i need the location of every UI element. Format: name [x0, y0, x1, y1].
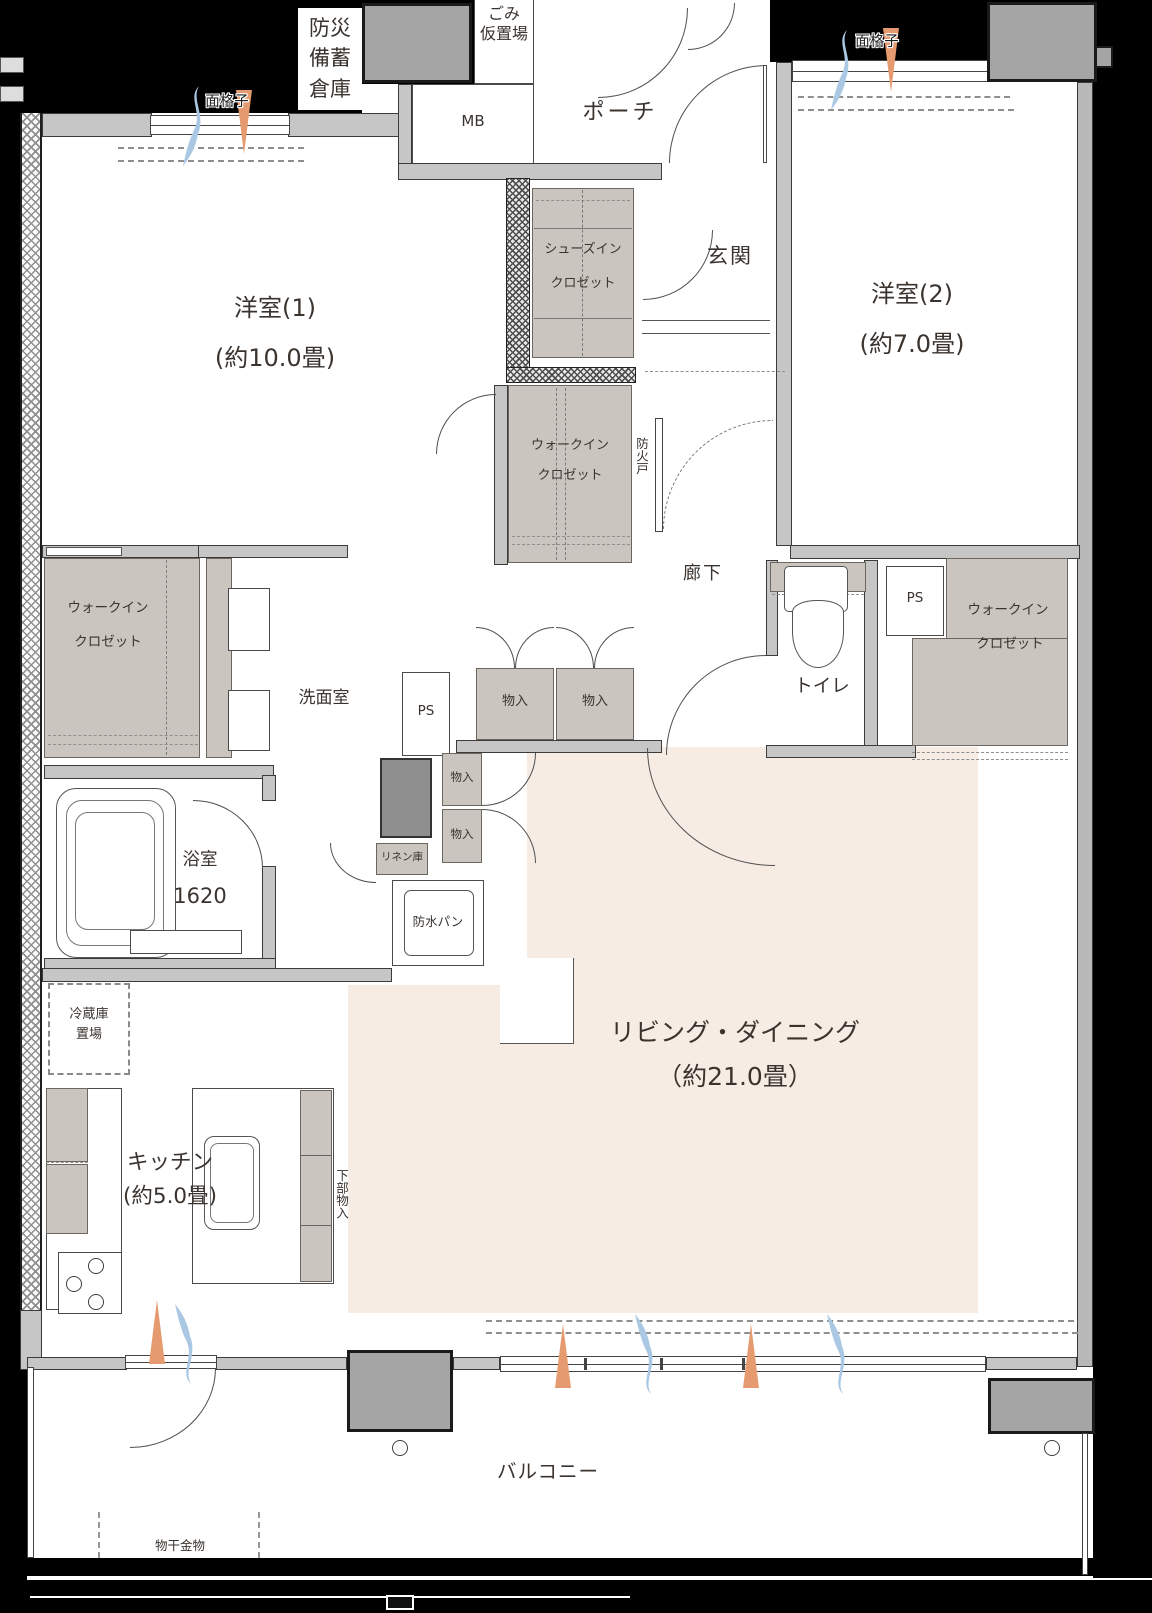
wic-right-dash-1 — [912, 752, 1068, 753]
disaster-storage-box: 防災 備蓄 倉庫 — [298, 8, 362, 110]
storage-b-door-arc-2 — [594, 627, 634, 668]
bath-size-label: 1620 — [152, 884, 248, 909]
wall-sic-bottom — [506, 367, 636, 383]
wall-balcony-2 — [215, 1357, 347, 1370]
wall-hall-bottom — [456, 740, 662, 753]
wall-entry-left — [506, 178, 530, 368]
balcony-outer-line — [30, 1596, 630, 1598]
balcony-left-edge — [27, 1367, 34, 1558]
hallway-label: 廊下 — [668, 563, 738, 585]
bath-label: 浴室 — [158, 850, 242, 871]
washer-counter — [380, 758, 432, 838]
western2-label: 洋室(2) — [812, 280, 1012, 309]
toilet-bowl — [792, 600, 844, 668]
island-split-1 — [300, 1155, 332, 1156]
shoes-in-closet — [532, 188, 634, 358]
fridge-label-2: 置場 — [50, 1027, 128, 1043]
storage-a-label: 物入 — [476, 694, 554, 710]
stove-burner-3 — [88, 1294, 104, 1310]
wic-left-sliding-door — [46, 547, 122, 556]
walkin-right-label-2: クロゼット — [956, 636, 1064, 652]
kitchen-counter-dash — [46, 1162, 88, 1163]
storage-a-door-arc-2 — [515, 627, 554, 668]
stove-burner-1 — [88, 1258, 104, 1274]
linen-door-arc — [330, 843, 376, 883]
wall-wic-center-left — [494, 385, 508, 565]
vanity-unit-a — [228, 588, 270, 651]
wic-left-dash-h2 — [48, 744, 198, 745]
wall-porch-bottom — [398, 163, 662, 180]
ld-curtain-dash-2 — [486, 1332, 1078, 1334]
party-wall-left — [20, 113, 42, 1310]
shoes-closet-label-2: クロゼット — [538, 276, 628, 292]
laundry-pole-line-1 — [98, 1512, 100, 1558]
fridge-label-1: 冷蔵庫 — [50, 1007, 128, 1023]
window-grille-label-left: 面格子 — [196, 94, 258, 111]
wall-balcony-4 — [986, 1357, 1077, 1370]
storage-d-label: 物入 — [444, 828, 480, 842]
toilet-door-arc — [666, 655, 766, 755]
walkin-center-label-2: クロゼット — [510, 468, 630, 484]
trash-room-label-1: ごみ — [475, 4, 533, 23]
wall-kitchen-top — [42, 968, 392, 982]
vanity-unit-b — [228, 690, 270, 751]
walkin-right-label-1: ウォークイン — [952, 602, 1064, 618]
entrance-step-line-b — [642, 333, 770, 334]
storage-b-door-arc-1 — [556, 627, 594, 668]
porch-door-arc — [598, 8, 688, 98]
wall-western2-bottom — [790, 545, 1080, 559]
wall-top-w1-left — [42, 113, 152, 137]
wall-toilet-bottom — [766, 745, 916, 758]
bathtub-inner — [75, 812, 155, 930]
wall-bath-right-a — [262, 775, 276, 801]
sic-shelf-line-b — [534, 318, 632, 319]
pipe-space-left-label: PS — [402, 703, 450, 719]
kitchen-counter-top — [46, 1088, 88, 1162]
living-dining-size: （約21.0畳） — [520, 1062, 950, 1092]
balcony-label: バルコニー — [478, 1460, 618, 1483]
fire-door-leaf — [655, 418, 663, 532]
waterproof-pan-label: 防水パン — [394, 914, 482, 929]
trash-room: ごみ 仮置場 — [474, 0, 534, 84]
laundry-pole-line-2 — [258, 1512, 260, 1558]
window-western1 — [150, 115, 290, 135]
stove-burner-2 — [66, 1276, 82, 1292]
storage-a-door-arc-1 — [476, 627, 515, 668]
outer-wall-right — [1077, 82, 1093, 1367]
wall-western1-bottom-right — [198, 545, 348, 558]
entry-door-leaf — [763, 65, 767, 163]
toilet-label: トイレ — [778, 676, 866, 698]
window-grille-label-right: 面格子 — [846, 34, 908, 51]
airflow-in-icon — [146, 1298, 168, 1364]
walkin-center-label-1: ウォークイン — [510, 438, 630, 454]
balcony-drain-box — [386, 1595, 414, 1610]
washroom-label: 洗面室 — [276, 688, 372, 708]
edge-mark-a — [0, 57, 24, 73]
floor-plan: 防災 備蓄 倉庫 ごみ 仮置場 MB ポーチ 面格子 面格子 洋室(1) (約1… — [0, 0, 1152, 1613]
window-mullion-1 — [584, 1358, 587, 1370]
edge-mark-b — [0, 86, 24, 102]
linen-label: リネン庫 — [376, 851, 428, 864]
ld-curtain-dash-1 — [486, 1320, 1074, 1322]
walkin-left-label-1: ウォークイン — [50, 600, 166, 616]
outside-bottom-left — [0, 1367, 27, 1613]
sic-shelf-line-a — [534, 228, 632, 229]
entrance-label: 玄関 — [690, 244, 770, 269]
disaster-storage-label-2: 備蓄 — [309, 46, 351, 71]
fridge-space: 冷蔵庫 置場 — [48, 983, 130, 1075]
laundry-hardware-label: 物干金物 — [138, 1538, 222, 1553]
kitchen-label: キッチン — [95, 1150, 245, 1176]
island-under-storage — [300, 1090, 332, 1282]
airflow-out-icon — [174, 1300, 200, 1384]
fire-door-arc — [663, 420, 773, 530]
wic-center-dash-h2 — [512, 544, 630, 545]
wic-left-dash-h1 — [48, 735, 198, 736]
walkin-closet-left — [44, 558, 200, 758]
airflow-out-icon — [826, 1310, 852, 1394]
curtain-line-w1-b — [118, 160, 304, 162]
entrance-step-line-a — [642, 320, 770, 321]
western1-label: 洋室(1) — [175, 294, 375, 323]
disaster-storage-label-3: 倉庫 — [309, 77, 351, 102]
walkin-closet-right-upper — [946, 558, 1068, 642]
walkin-left-label-2: クロゼット — [50, 634, 166, 650]
balcony-right-edge — [1082, 1433, 1088, 1575]
disaster-storage-label-1: 防災 — [309, 16, 351, 41]
storage-b-label: 物入 — [556, 694, 634, 710]
airflow-out-icon — [634, 1310, 660, 1394]
wall-balcony-3 — [453, 1357, 500, 1370]
living-dining-label: リビング・ダイニング — [520, 1018, 950, 1048]
kitchen-counter-mid — [46, 1164, 88, 1234]
structural-block-tab — [1095, 46, 1113, 68]
pillar-mid-marker — [392, 1440, 408, 1456]
bath-counter — [130, 930, 242, 954]
pipe-space-right-label: PS — [886, 590, 944, 606]
sic-shelf-dash — [536, 200, 630, 201]
western1-wic-door-arc — [436, 394, 496, 454]
under-counter-storage-label: 下部物入 — [334, 1146, 349, 1242]
structural-block-top-left — [362, 3, 472, 83]
western1-size: (約10.0畳) — [165, 344, 385, 373]
pillar-balcony-right — [988, 1378, 1095, 1434]
balcony-outer-band-1 — [0, 1558, 1152, 1576]
curtain-line-w1-a — [118, 147, 304, 149]
wic-right-dash-2 — [912, 759, 1068, 760]
wall-bath-top — [44, 765, 274, 779]
airflow-in-icon — [552, 1322, 574, 1388]
wall-toilet-right — [864, 560, 878, 750]
western2-size: (約7.0畳) — [812, 330, 1012, 359]
shoes-closet-label-1: シューズイン — [538, 242, 628, 258]
kitchen-size: (約5.0畳) — [85, 1184, 255, 1210]
wall-western2-left — [776, 62, 792, 546]
wall-top-w1-right — [288, 113, 412, 137]
meter-box-label: MB — [433, 112, 513, 130]
fire-door-label: 防火戸 — [634, 424, 649, 488]
island-split-2 — [300, 1225, 332, 1226]
kitchen-balcony-door — [125, 1355, 217, 1369]
window-mullion-2 — [660, 1358, 663, 1370]
sic-center-dash — [582, 190, 583, 356]
wic-left-dash-v — [166, 560, 167, 755]
storage-c-label: 物入 — [444, 771, 480, 785]
porch-door-arc-small — [688, 3, 735, 50]
pillar-balcony-mid — [347, 1350, 453, 1432]
structural-block-top-right — [987, 2, 1097, 82]
porch-label: ポーチ — [540, 100, 700, 126]
airflow-in-icon — [740, 1322, 762, 1388]
walkin-closet-right-lower — [912, 638, 1068, 746]
pillar-right-marker — [1044, 1440, 1060, 1456]
entrance-dash — [645, 371, 785, 372]
outside-right-band — [1093, 0, 1152, 1578]
wall-balcony-1 — [27, 1357, 127, 1370]
wic-center-dash-h1 — [512, 536, 630, 537]
wall-bath-right-b — [262, 866, 276, 970]
entry-door-arc — [669, 65, 767, 163]
trash-room-label-2: 仮置場 — [475, 24, 533, 43]
kitchen-balcony-door-arc — [130, 1368, 216, 1448]
